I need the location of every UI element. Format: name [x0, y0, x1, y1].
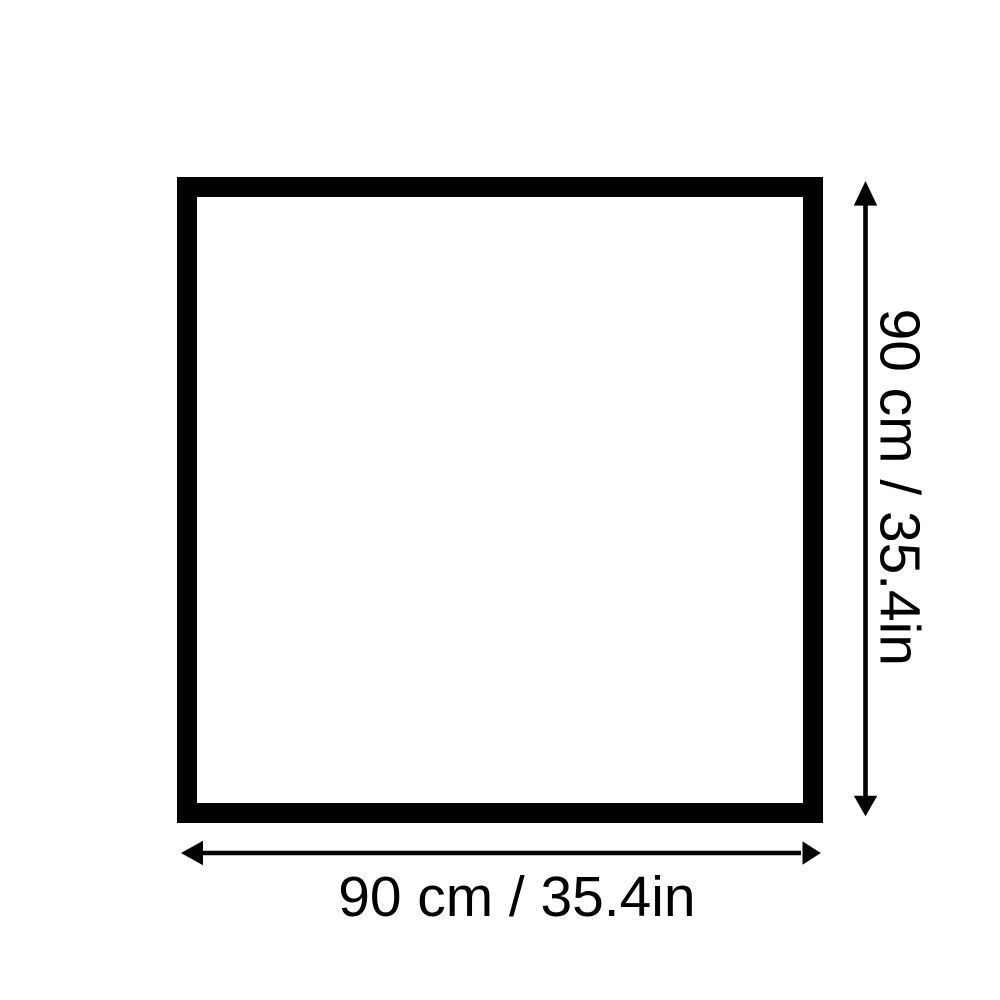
svg-text:90 cm / 35.4in: 90 cm / 35.4in: [338, 865, 695, 929]
svg-text:90 cm / 35.4in: 90 cm / 35.4in: [867, 309, 931, 666]
